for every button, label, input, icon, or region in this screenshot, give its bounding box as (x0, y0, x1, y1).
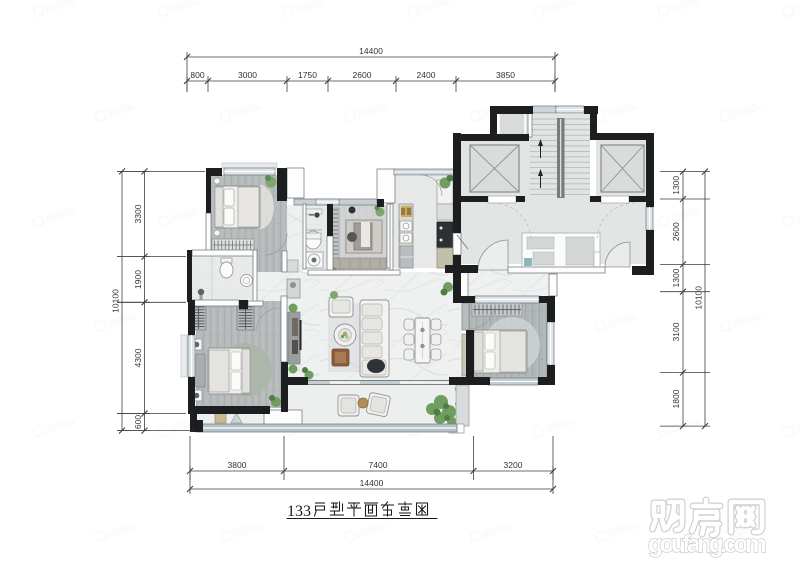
svg-text:600: 600 (133, 415, 143, 429)
svg-text:1300: 1300 (671, 176, 681, 195)
svg-text:2600: 2600 (671, 222, 681, 241)
svg-text:14400: 14400 (360, 478, 384, 488)
svg-text:4300: 4300 (133, 348, 143, 367)
svg-text:2400: 2400 (417, 70, 436, 80)
svg-text:3200: 3200 (504, 460, 523, 470)
svg-text:1300: 1300 (671, 268, 681, 287)
svg-text:3850: 3850 (496, 70, 515, 80)
svg-text:1750: 1750 (298, 70, 317, 80)
svg-text:10100: 10100 (694, 286, 704, 310)
svg-text:3300: 3300 (133, 204, 143, 223)
svg-text:7400: 7400 (369, 460, 388, 470)
svg-text:3100: 3100 (671, 322, 681, 341)
svg-text:14400: 14400 (359, 46, 383, 56)
svg-text:goufang.com: goufang.com (648, 531, 766, 558)
svg-text:10100: 10100 (111, 289, 121, 313)
svg-text:3800: 3800 (228, 460, 247, 470)
svg-text:1800: 1800 (671, 389, 681, 408)
svg-text:2600: 2600 (353, 70, 372, 80)
svg-text:800: 800 (190, 70, 204, 80)
svg-text:133: 133 (287, 503, 311, 520)
svg-text:3000: 3000 (238, 70, 257, 80)
svg-text:1900: 1900 (133, 270, 143, 289)
